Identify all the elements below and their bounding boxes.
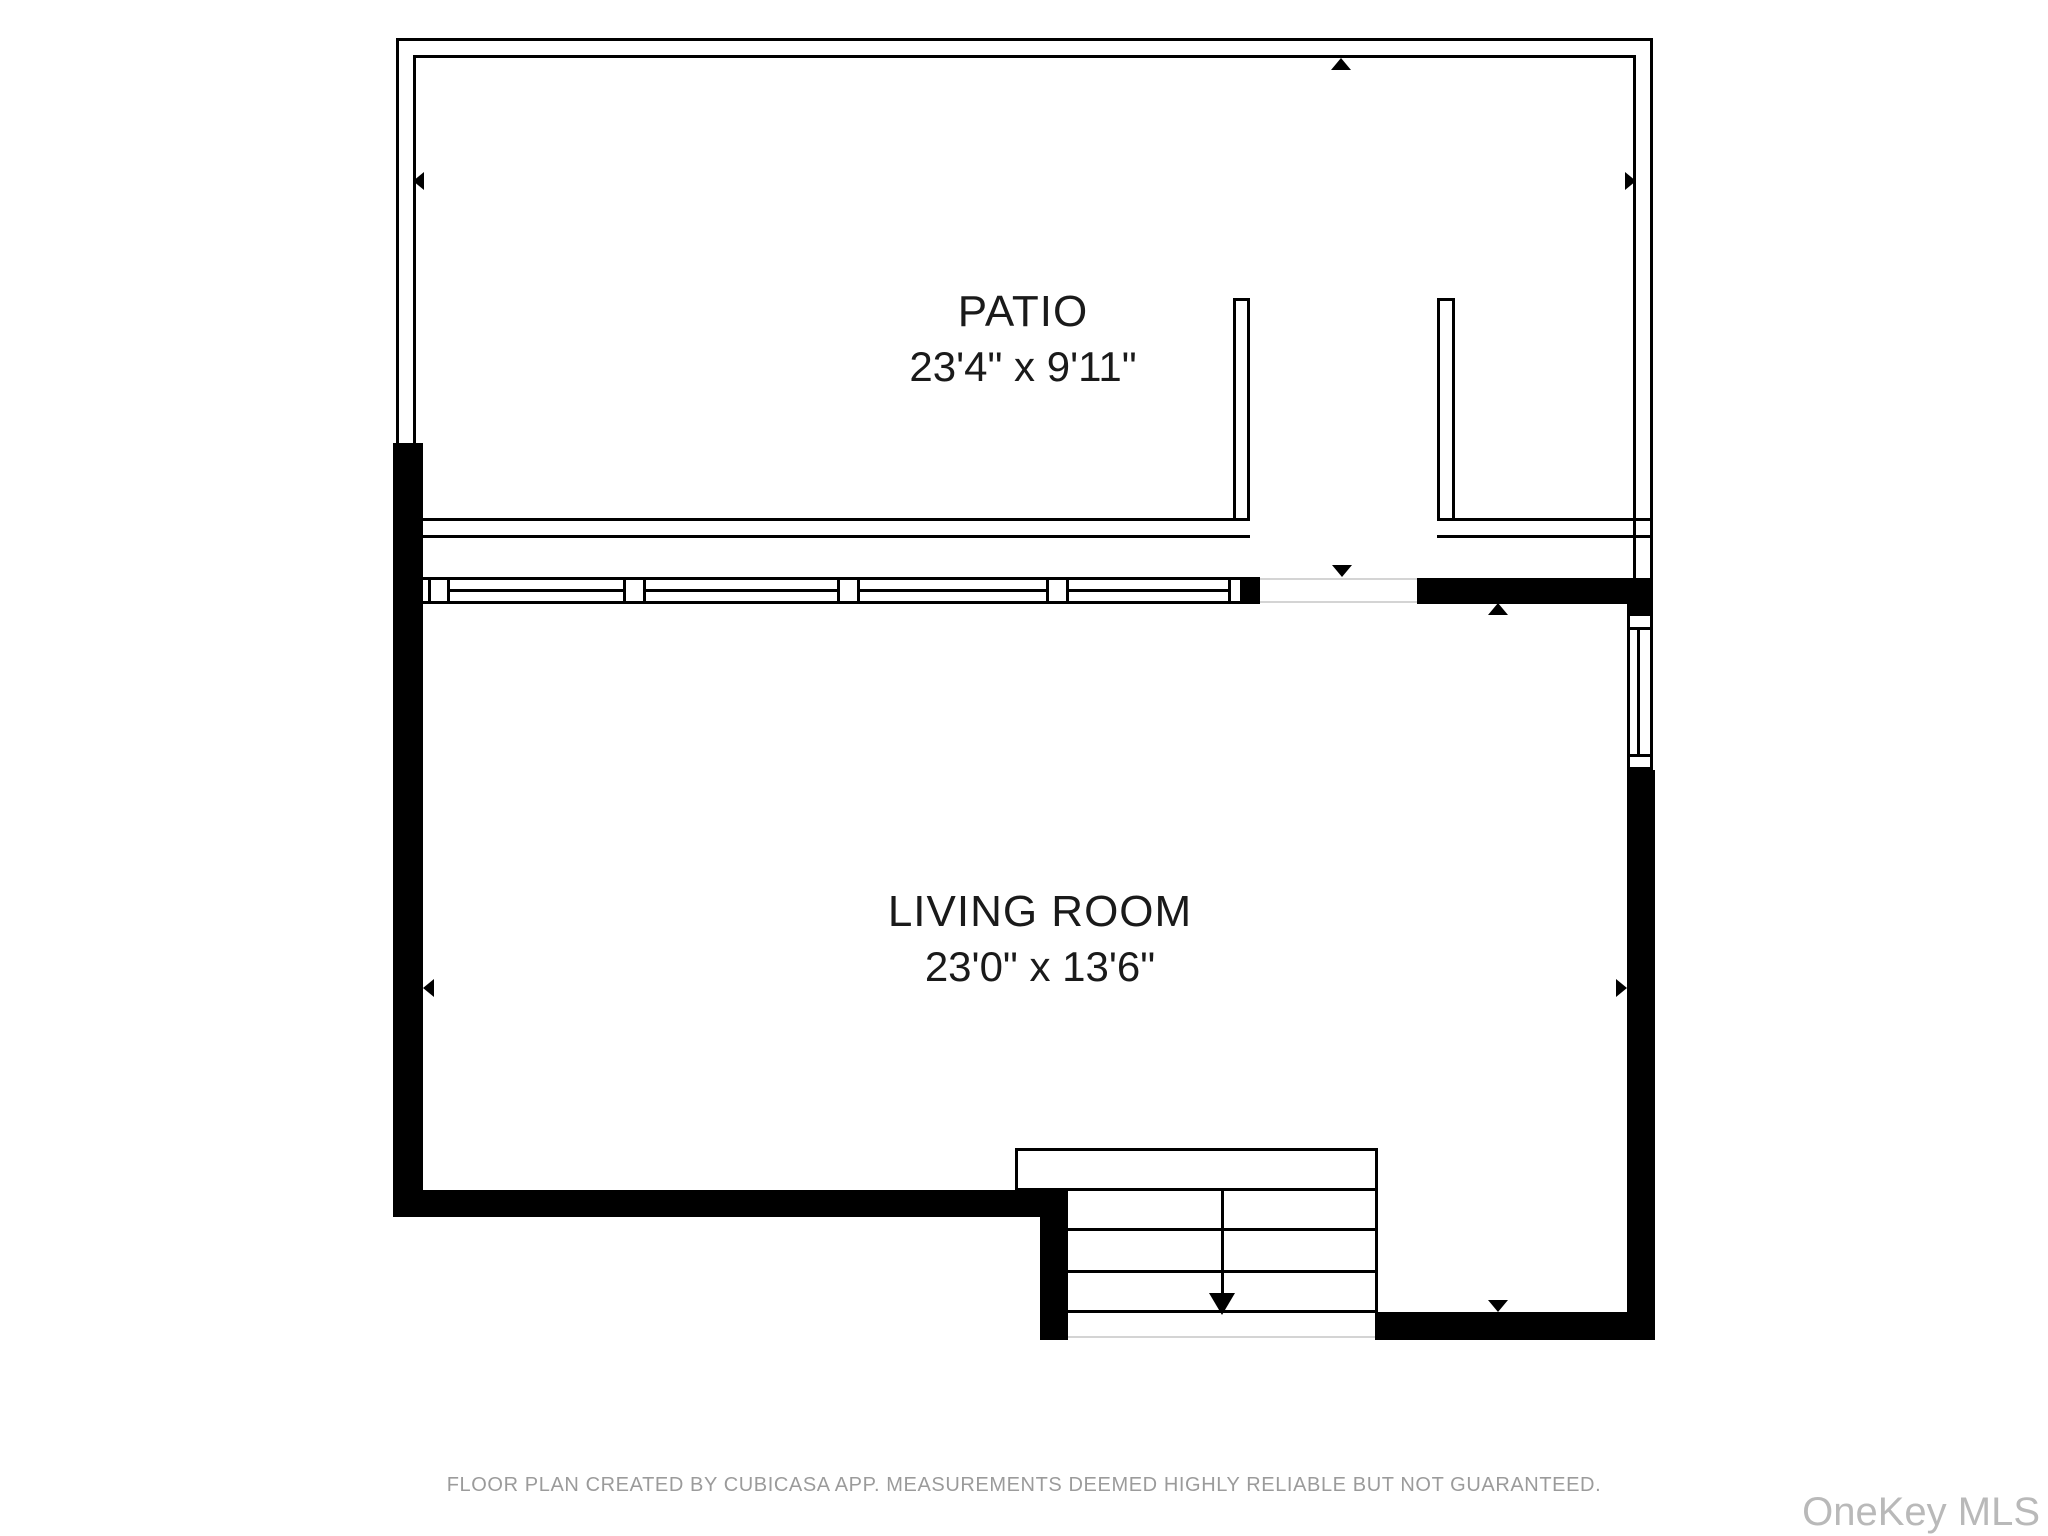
patio-wall-bottom-right-upper: [1437, 518, 1653, 521]
floor-plan: PATIO 23'4" x 9'11" LIVING ROOM 23'0" x …: [0, 0, 2048, 1536]
stairs-direction-line: [1221, 1188, 1224, 1295]
living-room-name: LIVING ROOM: [790, 888, 1290, 936]
stairs-landing: [1015, 1148, 1378, 1191]
patio-wall-left-inner: [413, 55, 416, 446]
right-window-right-edge: [1650, 613, 1653, 770]
right-wall-band-stub: [1627, 603, 1653, 613]
right-window-frame-bottom: [1627, 754, 1653, 757]
right-window-bottom: [1627, 767, 1653, 770]
stairs-exit-threshold: [1068, 1336, 1375, 1338]
patio-stub2-cap: [1437, 298, 1455, 301]
window-mullion-3a: [1046, 577, 1049, 604]
patio-wall-top-outer: [396, 38, 1653, 41]
stairs-right-edge: [1375, 1188, 1378, 1313]
living-room-dimensions: 23'0" x 13'6": [790, 944, 1290, 990]
arrow-down-icon-door-opening: [1332, 565, 1352, 577]
right-window-frame-top: [1627, 627, 1653, 630]
window-frame-v1: [428, 577, 431, 604]
patio-wall-right-inner: [1633, 55, 1636, 578]
patio-room-dimensions: 23'4" x 9'11": [773, 344, 1273, 390]
arrow-right-icon-living-right: [1616, 979, 1627, 997]
window-pane2-midline: [646, 589, 837, 592]
door-left-wall-stub: [1243, 577, 1260, 604]
arrow-down-icon-bottom-right-wall: [1488, 1300, 1508, 1312]
living-room-wall-bottom-left: [393, 1190, 1068, 1217]
wall-band-right-of-door: [1417, 578, 1653, 604]
living-room-wall-left: [393, 443, 423, 1217]
patio-wall-top-inner: [413, 55, 1636, 58]
arrow-left-icon-living-left: [423, 979, 434, 997]
window-frame-v4: [1240, 577, 1243, 604]
window-pane1-midline: [447, 589, 623, 592]
arrow-up-icon-patio-top: [1331, 58, 1351, 70]
patio-wall-right-outer: [1650, 38, 1653, 578]
window-band-bottom: [423, 601, 1243, 604]
patio-room-name: PATIO: [773, 288, 1273, 336]
arrow-right-icon-patio-right: [1625, 172, 1636, 190]
patio-stub2-right: [1452, 298, 1455, 521]
window-mullion-2a: [837, 577, 840, 604]
right-window-left-edge: [1627, 613, 1630, 770]
arrow-up-icon-below-door-wall: [1488, 603, 1508, 615]
patio-stub2-left: [1437, 298, 1440, 521]
floor-plan-disclaimer: FLOOR PLAN CREATED BY CUBICASA APP. MEAS…: [0, 1474, 2048, 1497]
arrow-left-icon-patio-left: [413, 172, 424, 190]
stairs-down-arrow-icon: [1209, 1293, 1235, 1315]
patio-wall-bottom-right-lower: [1437, 535, 1653, 538]
window-pane4-midline: [1069, 589, 1228, 592]
patio-label-block: PATIO 23'4" x 9'11": [773, 288, 1273, 390]
patio-wall-bottom-left-upper: [420, 518, 1250, 521]
right-window-top: [1627, 613, 1653, 616]
living-room-wall-right: [1627, 770, 1655, 1340]
stairs-left-wall: [1040, 1217, 1068, 1340]
window-pane3-midline: [860, 589, 1046, 592]
patio-wall-bottom-left-lower: [420, 535, 1250, 538]
door-threshold-bottom: [1260, 601, 1417, 603]
patio-wall-left-outer: [396, 38, 399, 446]
right-window-midline: [1637, 627, 1640, 757]
window-mullion-1a: [623, 577, 626, 604]
living-room-wall-bottom-right: [1375, 1312, 1655, 1340]
living-room-label-block: LIVING ROOM 23'0" x 13'6": [790, 888, 1290, 990]
onekey-mls-watermark: OneKey MLS: [1802, 1490, 2040, 1535]
window-band-top: [423, 577, 1243, 580]
door-threshold-top: [1260, 578, 1417, 580]
window-frame-v3: [1228, 577, 1231, 604]
